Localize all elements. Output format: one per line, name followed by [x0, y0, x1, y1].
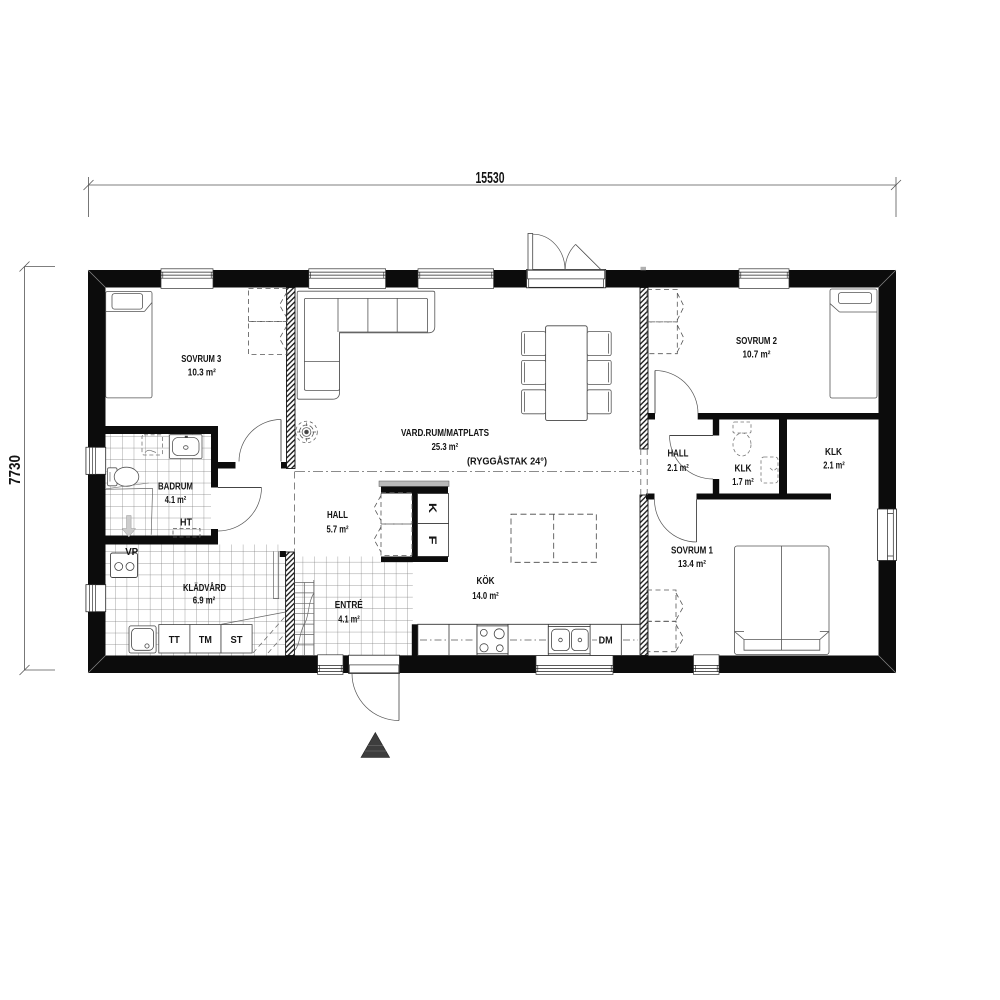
svg-text:BADRUM: BADRUM	[158, 482, 193, 493]
svg-text:10.3 m²: 10.3 m²	[188, 368, 217, 379]
svg-text:KLK: KLK	[735, 464, 753, 475]
svg-text:7730: 7730	[7, 455, 24, 485]
svg-text:ST: ST	[231, 635, 244, 646]
svg-text:SOVRUM 2: SOVRUM 2	[736, 336, 777, 347]
svg-text:HT: HT	[180, 518, 193, 529]
svg-text:(RYGGÅSTAK 24°): (RYGGÅSTAK 24°)	[467, 455, 547, 468]
svg-text:F: F	[426, 536, 438, 545]
svg-text:TM: TM	[199, 635, 212, 646]
svg-text:SOVRUM 3: SOVRUM 3	[181, 354, 221, 365]
svg-text:VARD.RUM/MATPLATS: VARD.RUM/MATPLATS	[401, 428, 489, 439]
svg-text:HALL: HALL	[327, 510, 348, 521]
svg-text:VP: VP	[125, 547, 138, 558]
svg-text:HALL: HALL	[668, 449, 689, 460]
svg-text:4.1 m²: 4.1 m²	[165, 495, 187, 506]
svg-text:6.9 m²: 6.9 m²	[193, 596, 216, 607]
svg-text:KÖK: KÖK	[477, 574, 496, 587]
svg-text:TT: TT	[169, 635, 181, 646]
svg-text:10.7 m²: 10.7 m²	[743, 350, 772, 361]
svg-text:K: K	[426, 503, 438, 513]
svg-text:ENTRÉ: ENTRÉ	[335, 598, 363, 611]
svg-text:SOVRUM 1: SOVRUM 1	[671, 546, 713, 557]
svg-text:25.3 m²: 25.3 m²	[432, 442, 459, 453]
svg-text:15530: 15530	[476, 170, 505, 187]
svg-text:4.1 m²: 4.1 m²	[338, 615, 360, 626]
svg-text:KLK: KLK	[825, 447, 843, 458]
svg-text:2.1 m²: 2.1 m²	[823, 461, 845, 472]
svg-text:14.0 m²: 14.0 m²	[472, 591, 499, 602]
svg-text:KLÄDVÅRD: KLÄDVÅRD	[183, 581, 226, 594]
svg-text:2.1 m²: 2.1 m²	[667, 463, 689, 474]
svg-text:1.7 m²: 1.7 m²	[732, 477, 754, 488]
svg-text:13.4 m²: 13.4 m²	[678, 559, 707, 570]
svg-text:5.7 m²: 5.7 m²	[327, 525, 350, 536]
svg-text:DM: DM	[599, 636, 613, 647]
